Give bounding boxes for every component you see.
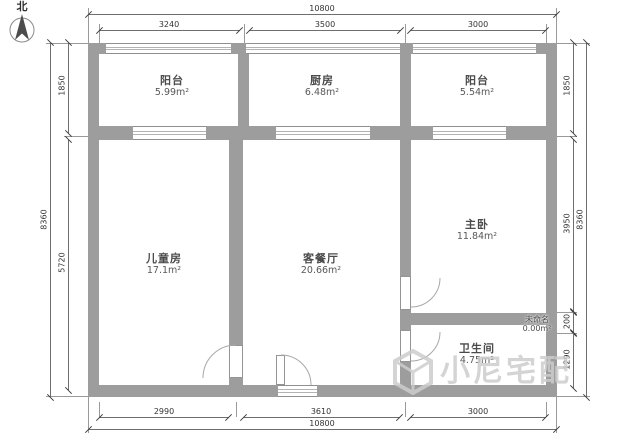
watermark: 小尼宅配: [392, 349, 572, 395]
dimension-line-right-seg4: [573, 333, 574, 388]
dimension-label: 3000: [468, 407, 488, 416]
dimension-line-left-seg1: [68, 43, 69, 133]
dimension-line-bottom-seg2: [243, 417, 400, 418]
extension-line: [46, 396, 88, 397]
room-label-unnamed: 未命名 0.00m²: [505, 315, 569, 333]
wall-top-corner-right: [536, 43, 557, 54]
dimension-label: 2990: [154, 407, 174, 416]
dimension-line-top-seg3: [410, 30, 546, 31]
room-label-living-dining: 客餐厅 20.66m²: [271, 252, 371, 277]
room-area: 5.99m²: [122, 87, 222, 99]
door-frame-master: [400, 276, 411, 310]
wall-mid-segment-3: [370, 126, 433, 140]
dimension-line-top-seg2: [249, 30, 401, 31]
room-label-kids-room: 儿童房 17.1m²: [114, 252, 214, 277]
extension-line: [244, 24, 245, 43]
wall-living-right-middle: [400, 310, 411, 330]
dimension-label: 10800: [309, 419, 334, 428]
compass: 北: [6, 1, 38, 49]
room-name: 儿童房: [114, 252, 214, 265]
dimension-line-right-seg2: [573, 140, 574, 312]
dimension-label: 3950: [563, 204, 572, 244]
door-frame-kids: [229, 345, 243, 378]
extension-line: [405, 24, 406, 43]
wall-kitchen-balcony: [400, 54, 411, 126]
dimension-line-bottom-seg1: [99, 417, 229, 418]
window-top-balcony-right: [413, 43, 536, 54]
window-top-kitchen: [246, 43, 400, 54]
window-mid-kids: [133, 126, 206, 140]
room-label-master-bedroom: 主卧 11.84m²: [427, 218, 527, 243]
dimension-label: 3000: [468, 20, 488, 29]
dimension-line-right-overall: [586, 43, 587, 397]
wall-kids-living-stub: [229, 378, 243, 385]
wall-bottom-left-segment: [88, 385, 278, 397]
dimension-line-right-seg3: [573, 312, 574, 333]
wall-mid-segment-2: [206, 126, 276, 140]
extension-line: [64, 136, 88, 137]
wall-balcony-kitchen: [238, 54, 249, 126]
wall-left: [88, 43, 99, 397]
wall-top-corner-left: [88, 43, 106, 54]
dimension-label: 10800: [309, 4, 334, 13]
room-area: 6.48m²: [272, 87, 372, 99]
dimension-label: 1850: [563, 66, 572, 106]
watermark-cube-icon: [392, 349, 434, 395]
dimension-label: 8360: [40, 200, 49, 240]
dimension-label: 1850: [58, 66, 67, 106]
room-name: 阳台: [122, 74, 222, 87]
dimension-line-top-seg1: [99, 30, 240, 31]
dimension-line-top-overall: [88, 14, 557, 15]
room-area: 5.54m²: [427, 87, 527, 99]
window-top-balcony-left: [106, 43, 231, 54]
wall-living-right-upper: [400, 140, 411, 276]
room-name: 阳台: [427, 74, 527, 87]
dimension-line-bottom-overall: [88, 429, 557, 430]
extension-line: [99, 24, 100, 43]
room-name: 未命名: [505, 315, 569, 324]
extension-line: [236, 402, 237, 417]
wall-kids-living-upper: [229, 140, 243, 345]
room-name: 客餐厅: [271, 252, 371, 265]
room-area: 0.00m²: [505, 324, 569, 333]
entry-door-leaf: [276, 355, 285, 385]
entry-opening: [278, 385, 317, 397]
dimension-label: 3500: [315, 20, 335, 29]
dimension-line-left-seg2: [68, 140, 69, 390]
wall-mid-segment-1: [88, 126, 133, 140]
room-label-balcony-right: 阳台 5.54m²: [427, 74, 527, 99]
dimension-label: 3610: [311, 407, 331, 416]
extension-line: [557, 136, 577, 137]
dimension-line-right-seg1: [573, 43, 574, 133]
room-area: 11.84m²: [427, 231, 527, 243]
north-label: 北: [6, 1, 38, 13]
room-area: 20.66m²: [271, 265, 371, 277]
room-name: 厨房: [272, 74, 372, 87]
room-area: 17.1m²: [114, 265, 214, 277]
floor-plan-canvas: 阳台 5.99m² 厨房 6.48m² 阳台 5.54m² 儿童房 17.1m²…: [0, 0, 640, 448]
room-label-balcony-left: 阳台 5.99m²: [122, 74, 222, 99]
wall-mid-segment-4: [506, 126, 557, 140]
dimension-line-bottom-seg3: [410, 417, 546, 418]
room-name: 主卧: [427, 218, 527, 231]
watermark-text: 小尼宅配: [440, 349, 572, 395]
wall-top-pier-1: [231, 43, 246, 54]
extension-line: [405, 402, 406, 417]
window-mid-living: [276, 126, 370, 140]
dimension-line-left-overall: [50, 43, 51, 397]
room-label-kitchen: 厨房 6.48m²: [272, 74, 372, 99]
wall-top-pier-2: [400, 43, 413, 54]
dimension-label: 5720: [58, 243, 67, 283]
wall-right: [546, 43, 557, 397]
window-mid-master: [433, 126, 506, 140]
north-arrow-icon: [7, 13, 37, 45]
dimension-label: 8360: [576, 200, 585, 240]
dimension-label: 3240: [159, 20, 179, 29]
